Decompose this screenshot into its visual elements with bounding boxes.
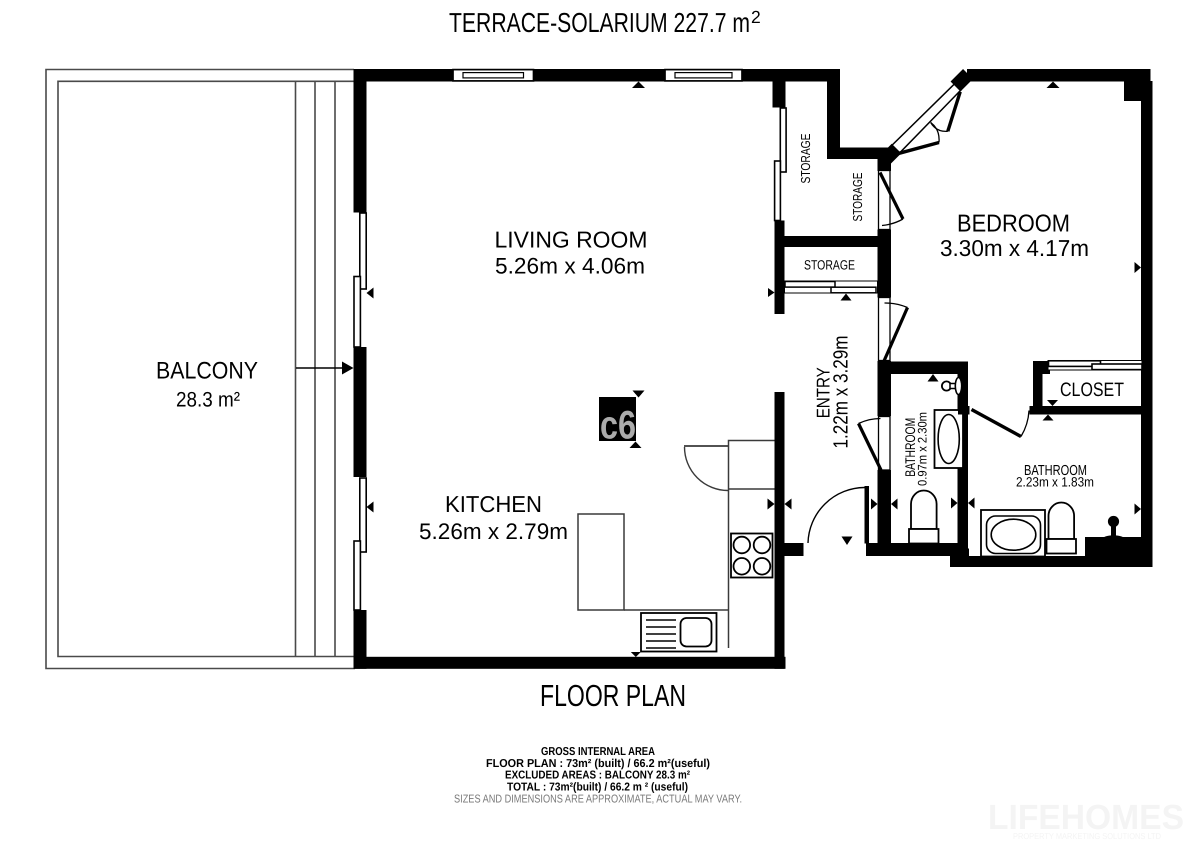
svg-text:BALCONY: BALCONY [156,358,258,385]
svg-text:5.26m x 2.79m: 5.26m x 2.79m [419,519,568,544]
svg-text:EXCLUDED AREAS : BALCONY 28.3: EXCLUDED AREAS : BALCONY 28.3 m² [505,770,690,782]
svg-text:TOTAL : 73m²(built) / 66.2 m: TOTAL : 73m²(built) / 66.2 m ² (useful) [507,782,688,794]
svg-text:1.22m x 3.29m: 1.22m x 3.29m [830,336,853,449]
svg-text:LIVING ROOM: LIVING ROOM [495,227,648,253]
svg-text:FLOOR PLAN: FLOOR PLAN [540,679,686,713]
svg-text:2.23m x 1.83m: 2.23m x 1.83m [1016,475,1094,490]
svg-text:GROSS INTERNAL AREA: GROSS INTERNAL AREA [541,746,655,758]
svg-text:c6: c6 [600,404,636,448]
svg-text:2: 2 [751,7,761,27]
svg-text:3.30m x 4.17m: 3.30m x 4.17m [940,235,1089,261]
svg-text:KITCHEN: KITCHEN [445,491,542,517]
svg-text:SIZES AND DIMENSIONS ARE APPRO: SIZES AND DIMENSIONS ARE APPROXIMATE, AC… [454,794,742,806]
svg-text:STORAGE: STORAGE [850,172,865,221]
svg-text:STORAGE: STORAGE [804,258,855,273]
svg-text:0.97m x 2.30m: 0.97m x 2.30m [916,412,930,486]
svg-text:28.3 m²: 28.3 m² [176,389,240,412]
svg-text:FLOOR PLAN : 73m² (built) /: FLOOR PLAN : 73m² (built) / 66.2 m²(usef… [486,758,710,770]
svg-text:STORAGE: STORAGE [798,133,813,183]
svg-text:CLOSET: CLOSET [1060,379,1124,401]
svg-text:TERRACE-SOLARIUM 227.7 m: TERRACE-SOLARIUM 227.7 m [449,7,750,38]
svg-text:PROPERTY MARKETING SOLUTIONS L: PROPERTY MARKETING SOLUTIONS LTD [1013,831,1161,841]
svg-text:5.26m x 4.06m: 5.26m x 4.06m [495,254,645,279]
svg-text:BEDROOM: BEDROOM [957,211,1070,238]
